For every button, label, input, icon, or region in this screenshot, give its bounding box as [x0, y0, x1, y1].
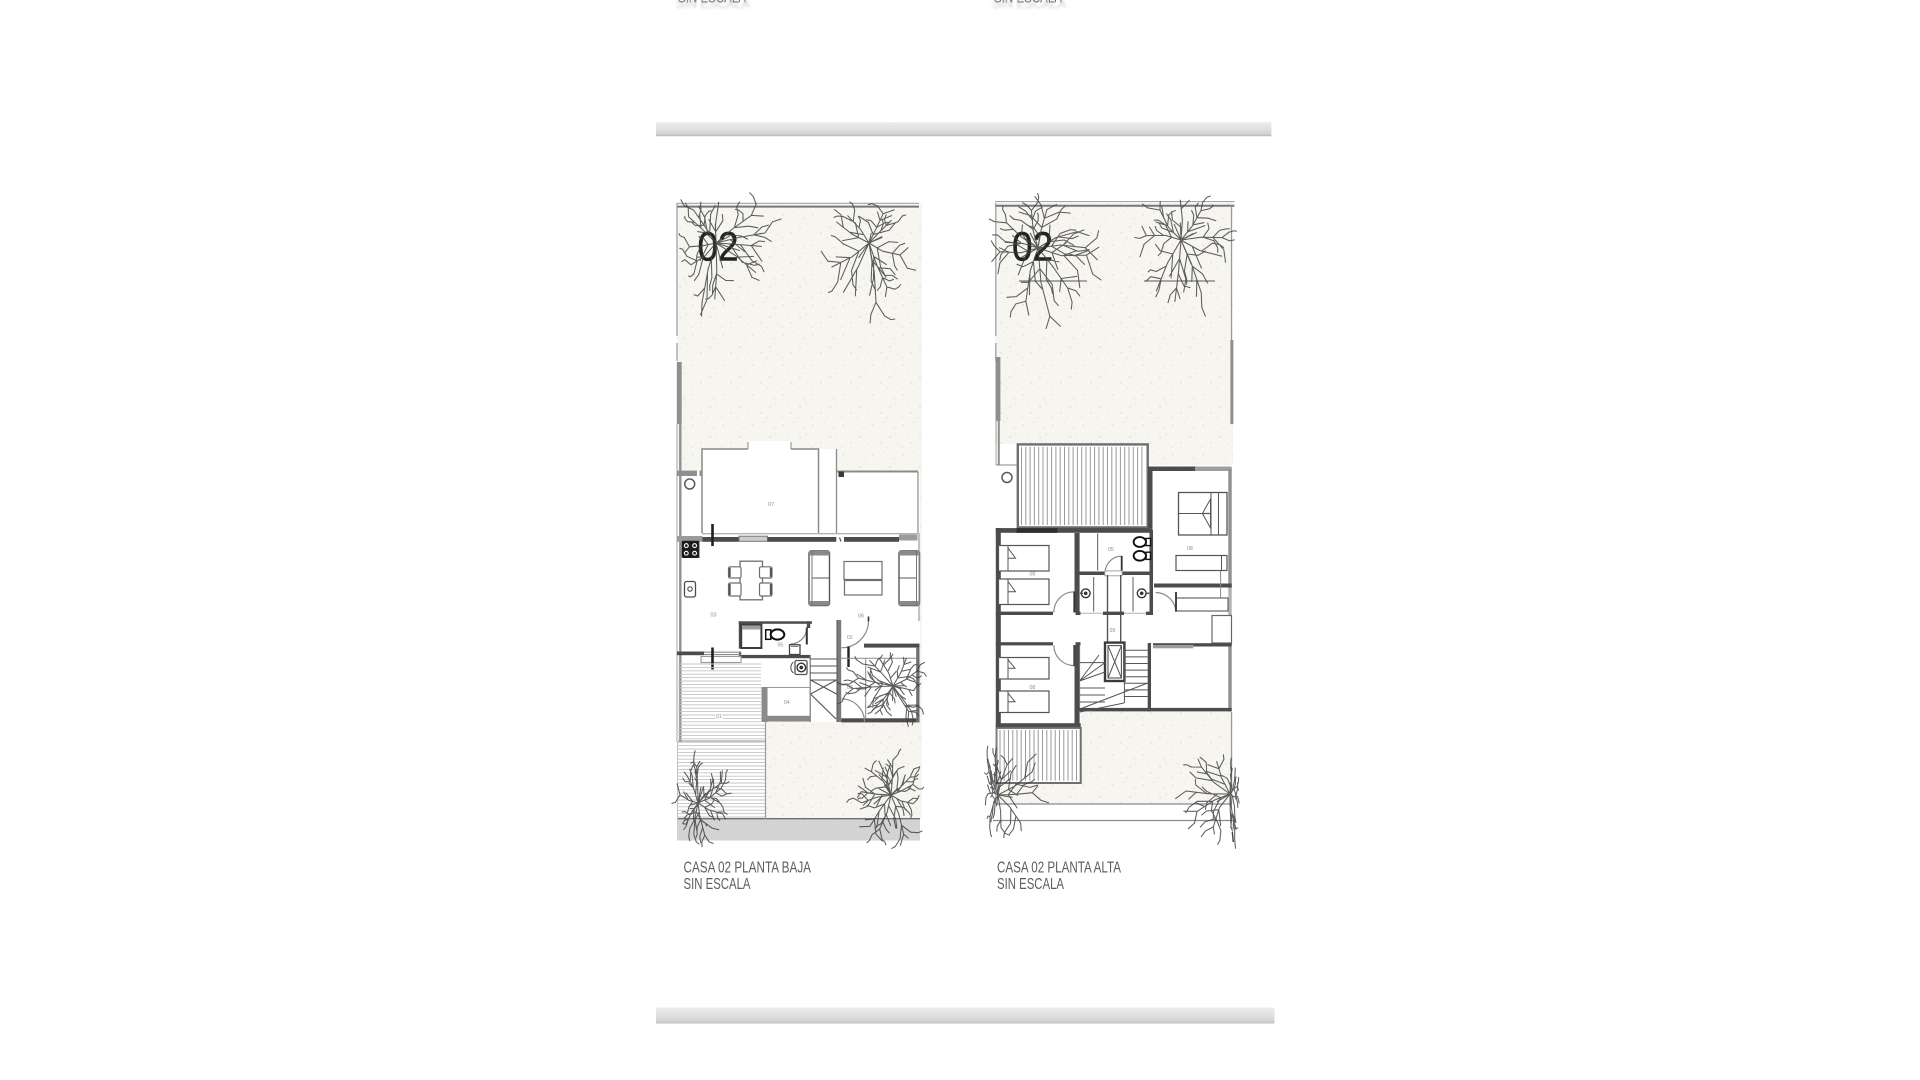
svg-text:02: 02 — [847, 635, 853, 641]
svg-text:SIN ESCALA: SIN ESCALA — [684, 876, 751, 893]
svg-text:08: 08 — [1030, 685, 1036, 691]
svg-text:01: 01 — [716, 714, 722, 720]
svg-text:09: 09 — [1110, 628, 1116, 634]
svg-text:07: 07 — [768, 502, 774, 508]
svg-text:08: 08 — [1187, 546, 1193, 552]
svg-text:04: 04 — [784, 700, 790, 706]
svg-text:03: 03 — [711, 613, 717, 619]
svg-text:05: 05 — [1108, 547, 1114, 553]
svg-text:CASA 02 PLANTA BAJA: CASA 02 PLANTA BAJA — [684, 860, 812, 877]
svg-text:CASA 02 PLANTA ALTA: CASA 02 PLANTA ALTA — [997, 860, 1121, 877]
svg-text:SIN ESCALA: SIN ESCALA — [992, 0, 1066, 11]
svg-text:SIN ESCALA: SIN ESCALA — [997, 876, 1064, 893]
svg-text:08: 08 — [1030, 572, 1036, 578]
svg-text:06: 06 — [858, 614, 864, 620]
svg-text:05: 05 — [778, 643, 784, 649]
svg-text:SIN ESCALA: SIN ESCALA — [676, 0, 750, 11]
